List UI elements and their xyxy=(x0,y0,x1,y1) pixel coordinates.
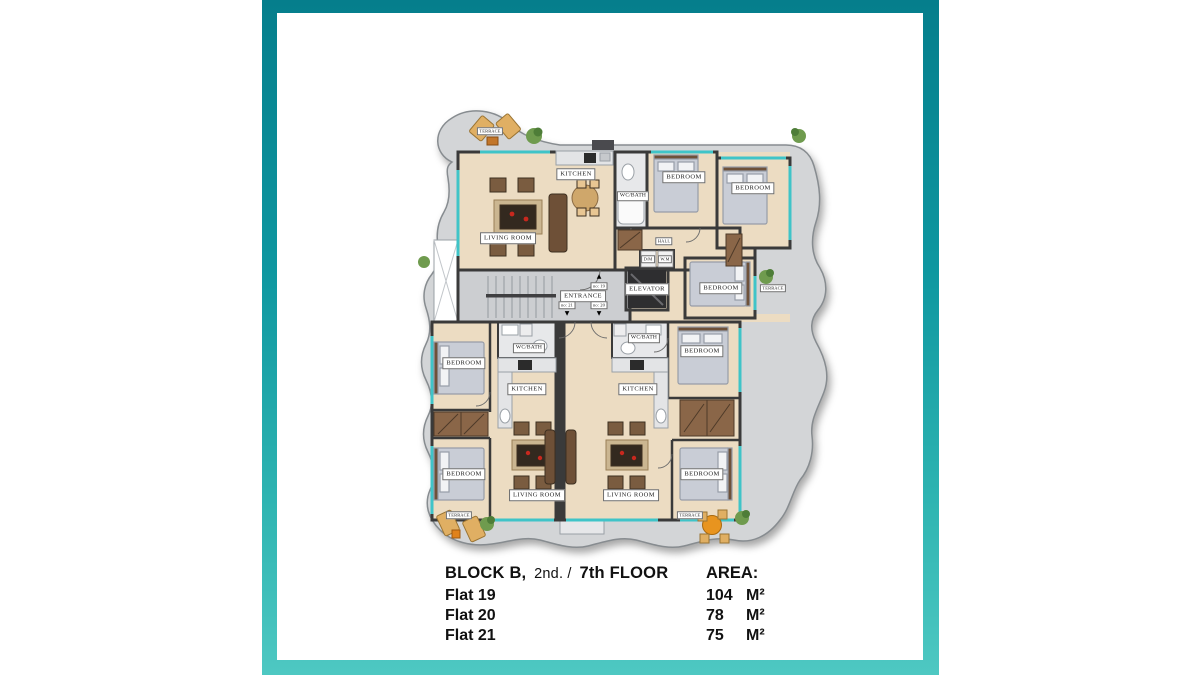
room-label-dm: D/M xyxy=(641,255,655,263)
room-label-wc-bath: WC/BATH xyxy=(628,333,660,343)
flat-number-label: no: 21 xyxy=(559,301,576,309)
plan-title: BLOCK B, 2nd. / 7th FLOOR xyxy=(445,564,668,583)
room-label-terrace: TERRACE xyxy=(446,511,472,519)
down-arrow-icon: ▼ xyxy=(565,311,570,317)
flat-row: Flat 19 104 M² xyxy=(445,587,785,605)
area-heading: AREA: xyxy=(706,564,758,583)
flat-name: Flat 21 xyxy=(445,627,496,644)
flat-row: Flat 21 75 M² xyxy=(445,627,785,645)
flat-area-value: 75 xyxy=(706,627,724,645)
room-label-hall: HALL xyxy=(655,237,672,245)
room-label-terrace: TERRACE xyxy=(677,511,703,519)
page: TERRACE KITCHEN WC/BATH BEDROOM BEDROOM … xyxy=(0,0,1200,675)
room-label-kitchen: KITCHEN xyxy=(618,383,657,395)
bed xyxy=(654,155,698,212)
room-label-wc-bath: WC/BATH xyxy=(617,191,649,201)
room-label-bedroom: BEDROOM xyxy=(731,182,774,194)
room-label-kitchen: KITCHEN xyxy=(556,168,595,180)
flat-number-label: no: 20 xyxy=(591,301,608,309)
room-label-entrance: ENTRANCE xyxy=(560,290,606,302)
room-label-bedroom: BEDROOM xyxy=(442,357,485,369)
room-label-bedroom: BEDROOM xyxy=(680,468,723,480)
floor-name: 7th FLOOR xyxy=(579,564,668,582)
room-label-bedroom: BEDROOM xyxy=(699,282,742,294)
up-arrow-icon: ▲ xyxy=(597,274,602,280)
room-label-terrace: TERRACE xyxy=(477,127,503,135)
flat-row: Flat 20 78 M² xyxy=(445,607,785,625)
flat-area-unit: M² xyxy=(746,627,765,645)
block-name: BLOCK B, xyxy=(445,564,526,582)
room-label-wc-bath: WC/BATH xyxy=(513,343,545,353)
flat-number-label: no: 19 xyxy=(591,282,608,290)
room-label-living-room: LIVING ROOM xyxy=(480,232,536,244)
flat-name: Flat 19 xyxy=(445,587,496,604)
down-arrow-icon: ▼ xyxy=(597,311,602,317)
room-label-bedroom: BEDROOM xyxy=(442,468,485,480)
room-label-bedroom: BEDROOM xyxy=(680,345,723,357)
flat-area-unit: M² xyxy=(746,587,765,605)
bed xyxy=(723,167,767,224)
flat-name: Flat 20 xyxy=(445,607,496,624)
flat-area-value: 78 xyxy=(706,607,724,625)
room-label-elevator: ELEVATOR xyxy=(625,283,669,295)
flat-area-unit: M² xyxy=(746,607,765,625)
floor-ordinal: 2nd. / xyxy=(534,566,571,582)
room-label-kitchen: KITCHEN xyxy=(507,383,546,395)
room-label-wm: W.M xyxy=(658,255,672,263)
room-label-bedroom: BEDROOM xyxy=(662,171,705,183)
room-label-living-room: LIVING ROOM xyxy=(603,489,659,501)
room-label-terrace: TERRACE xyxy=(760,284,786,292)
room-label-living-room: LIVING ROOM xyxy=(509,489,565,501)
flat-area-value: 104 xyxy=(706,587,733,605)
